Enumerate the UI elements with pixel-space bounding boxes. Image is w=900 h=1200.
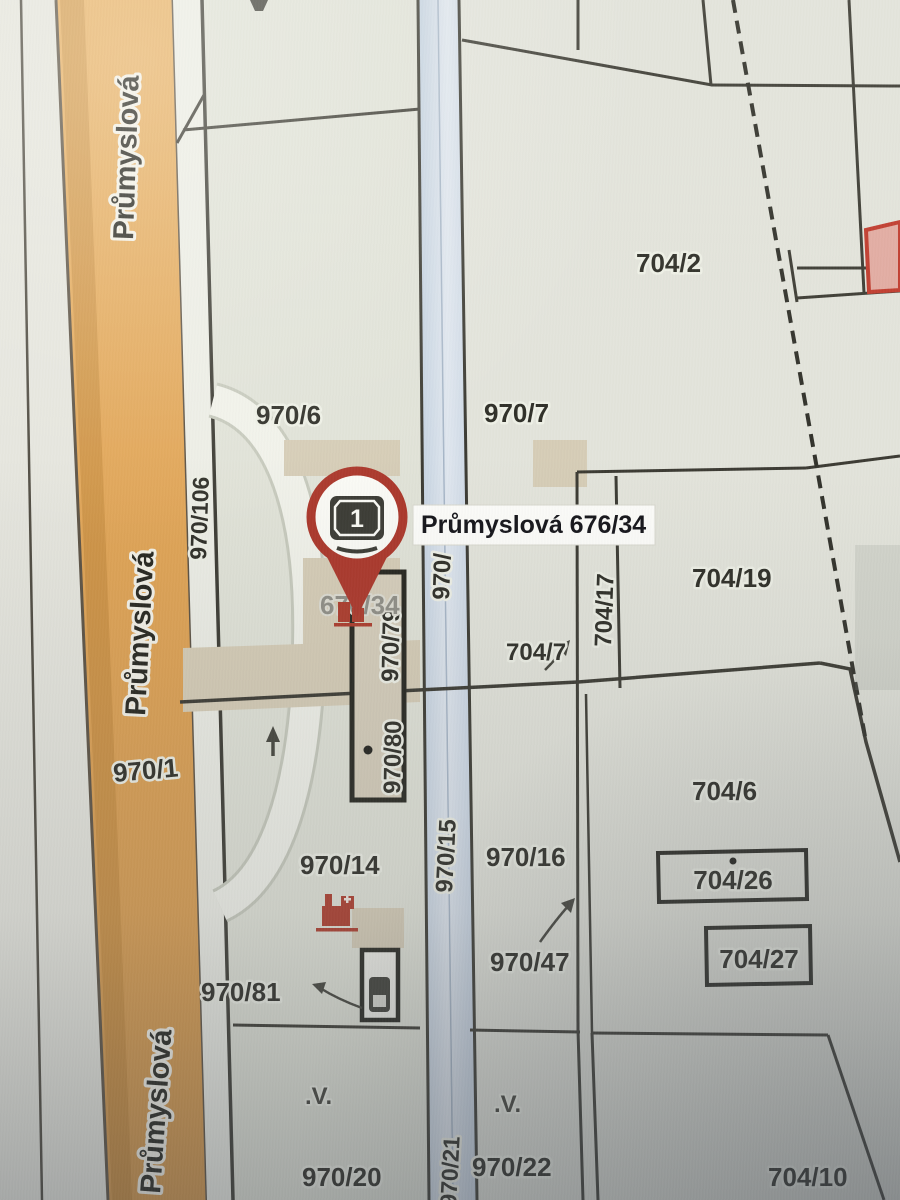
building-area-east: [533, 440, 587, 487]
highlight-parcel-red[interactable]: [866, 222, 900, 292]
label-970-22: 970/22: [472, 1152, 552, 1182]
label-970-1: 970/1: [112, 752, 179, 788]
label-970-106: 970/106: [185, 476, 214, 560]
label-704-27: 704/27: [719, 944, 799, 974]
label-704-6: 704/6: [692, 776, 757, 806]
label-704-10: 704/10: [768, 1162, 848, 1192]
label-970-21: 970/21: [435, 1135, 465, 1200]
label-704-17: 704/17: [590, 573, 620, 647]
dot-704-26: [730, 858, 737, 865]
label-970-16: 970/16: [486, 842, 566, 872]
label-704-26: 704/26: [693, 865, 773, 895]
label-970-20: 970/20: [302, 1162, 382, 1192]
building-point-dot: [364, 746, 373, 755]
pin-count: 1: [350, 505, 364, 533]
label-970-7: 970/7: [484, 398, 549, 428]
label-970-80: 970/80: [379, 720, 407, 794]
label-970-stream: 970/: [428, 552, 457, 600]
pin-address-label[interactable]: Průmyslová 676/34: [413, 505, 655, 545]
pin-address-text: Průmyslová 676/34: [421, 511, 646, 539]
label-970-14: 970/14: [300, 850, 380, 880]
label-704-2: 704/2: [636, 248, 701, 278]
label-970-47: 970/47: [490, 947, 570, 977]
building-area-south: [352, 908, 404, 948]
road-label-top: Průmyslová: [108, 74, 146, 240]
transformer-icon-inner: [373, 995, 386, 1007]
screen-shadow-patch: [855, 545, 900, 690]
cadastral-map-canvas[interactable]: Průmyslová Průmyslová Průmyslová 970/106…: [0, 0, 900, 1200]
label-970-81: 970/81: [201, 977, 281, 1007]
scrub-symbol-2: .V.: [494, 1091, 521, 1118]
scrub-symbol-1: .V.: [305, 1083, 332, 1110]
label-704-19: 704/19: [692, 563, 772, 593]
label-970-15: 970/15: [431, 819, 462, 894]
label-704-7: 704/7: [506, 639, 566, 666]
label-970-6: 970/6: [256, 400, 321, 430]
